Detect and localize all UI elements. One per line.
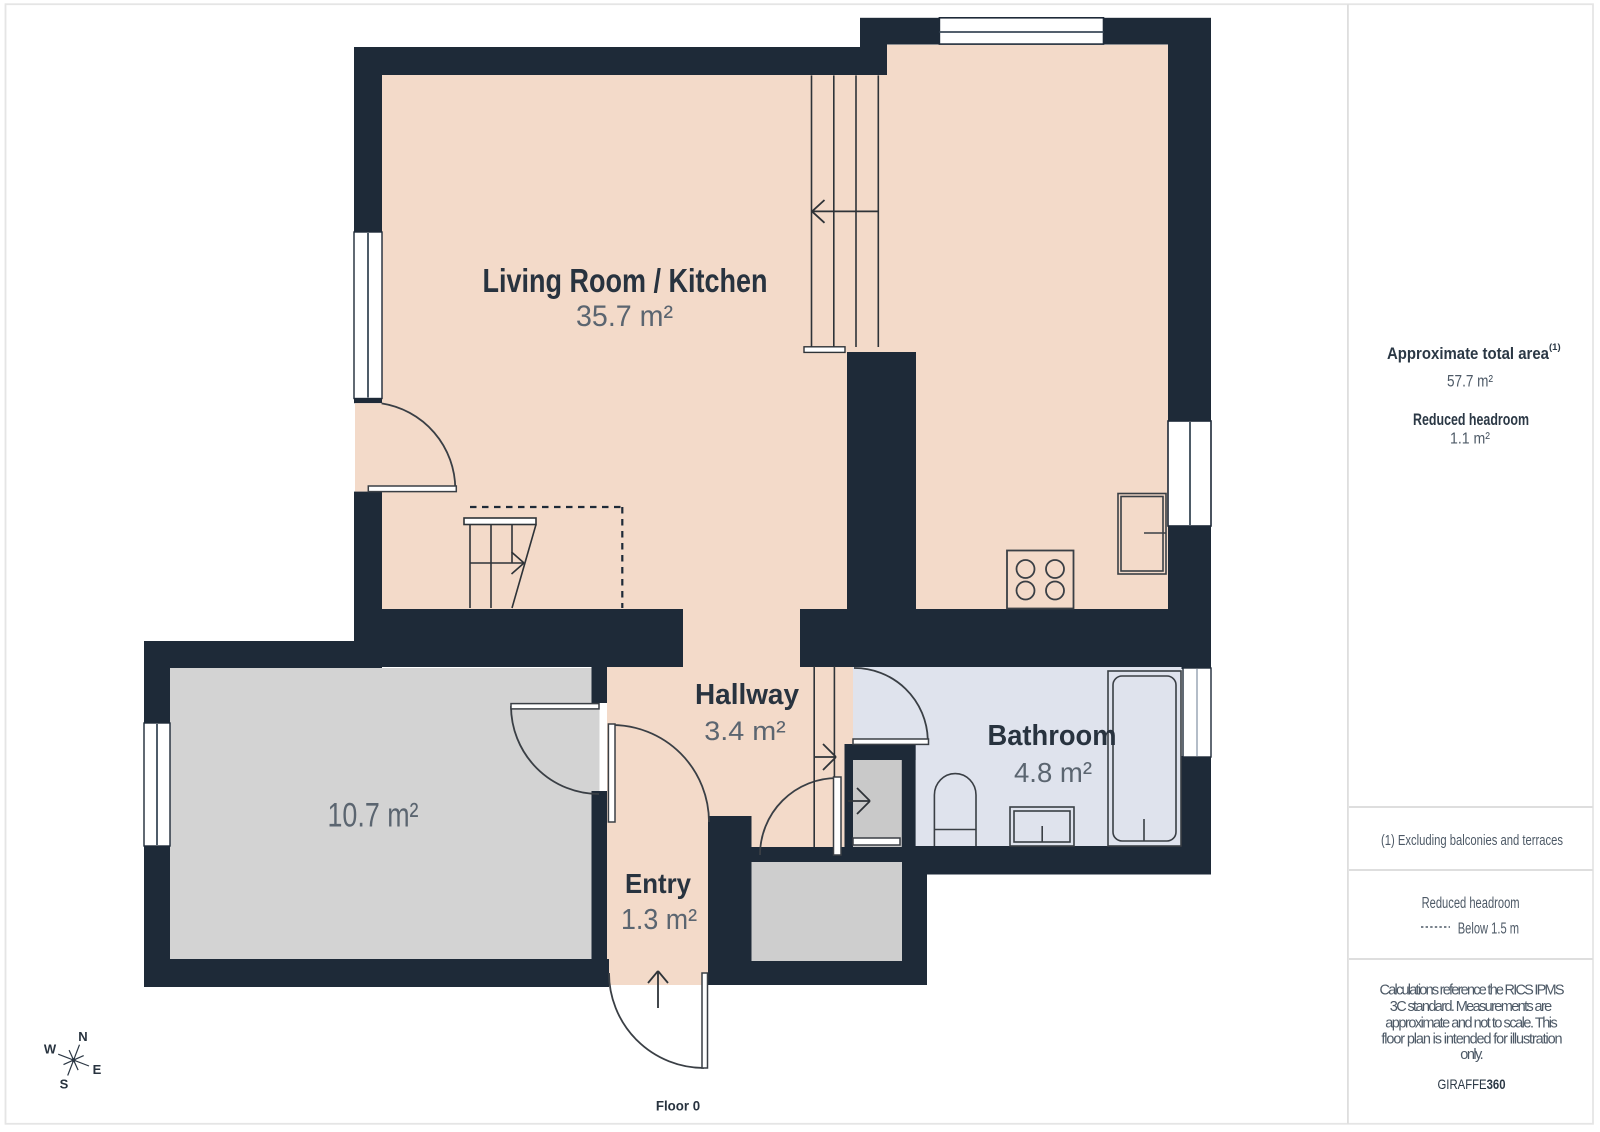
svg-text:3C standard. Measurements are: 3C standard. Measurements are	[1390, 999, 1553, 1015]
svg-text:approximate and not to scale.: approximate and not to scale. This	[1385, 1016, 1558, 1032]
svg-text:Below 1.5 m: Below 1.5 m	[1458, 921, 1519, 938]
svg-text:57.7 m²: 57.7 m²	[1447, 372, 1493, 391]
svg-text:Living Room / Kitchen: Living Room / Kitchen	[483, 262, 768, 299]
svg-text:N: N	[78, 1029, 87, 1044]
svg-text:W: W	[44, 1042, 57, 1057]
svg-text:E: E	[93, 1062, 102, 1077]
svg-text:(1): (1)	[1549, 342, 1561, 353]
svg-text:Calculations reference the RIC: Calculations reference the RICS IPMS	[1380, 983, 1565, 999]
svg-text:3.4 m²: 3.4 m²	[704, 716, 786, 746]
svg-text:S: S	[60, 1077, 69, 1092]
svg-text:Hallway: Hallway	[695, 679, 799, 711]
svg-text:Floor 0: Floor 0	[656, 1098, 701, 1114]
svg-text:only.: only.	[1460, 1047, 1483, 1063]
svg-text:floor plan is intended for ill: floor plan is intended for illustration	[1381, 1031, 1562, 1047]
svg-text:1.3 m²: 1.3 m²	[621, 904, 697, 936]
svg-text:(1) Excluding balconies and te: (1) Excluding balconies and terraces	[1381, 832, 1563, 849]
svg-text:10.7 m²: 10.7 m²	[328, 797, 419, 835]
svg-text:4.8 m²: 4.8 m²	[1014, 757, 1092, 788]
svg-text:Entry: Entry	[625, 868, 691, 899]
svg-text:GIRAFFE360: GIRAFFE360	[1438, 1076, 1506, 1092]
svg-text:35.7 m²: 35.7 m²	[576, 300, 673, 333]
svg-text:Reduced headroom: Reduced headroom	[1413, 411, 1529, 429]
svg-text:1.1 m²: 1.1 m²	[1450, 431, 1491, 448]
svg-text:Bathroom: Bathroom	[988, 720, 1117, 752]
svg-text:Reduced headroom: Reduced headroom	[1422, 895, 1520, 912]
svg-text:Approximate total area: Approximate total area	[1387, 345, 1550, 363]
